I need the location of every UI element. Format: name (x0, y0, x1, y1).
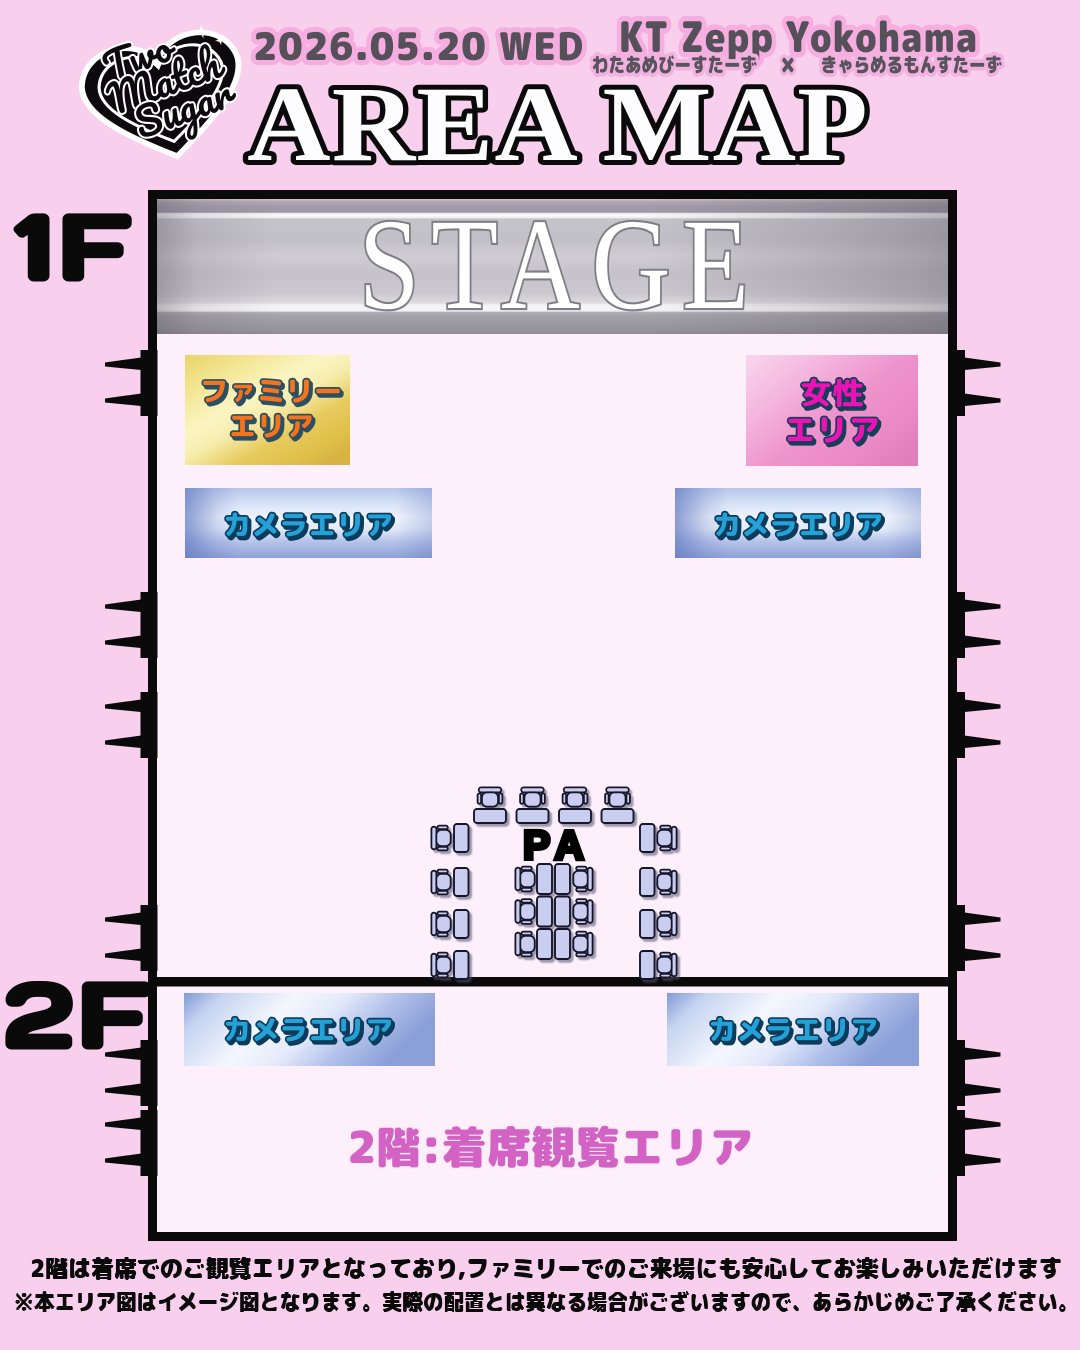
svg-text:AREA MAP: AREA MAP (247, 66, 869, 184)
svg-text:STAGE: STAGE (359, 192, 761, 336)
svg-text:PA: PA (523, 822, 591, 868)
